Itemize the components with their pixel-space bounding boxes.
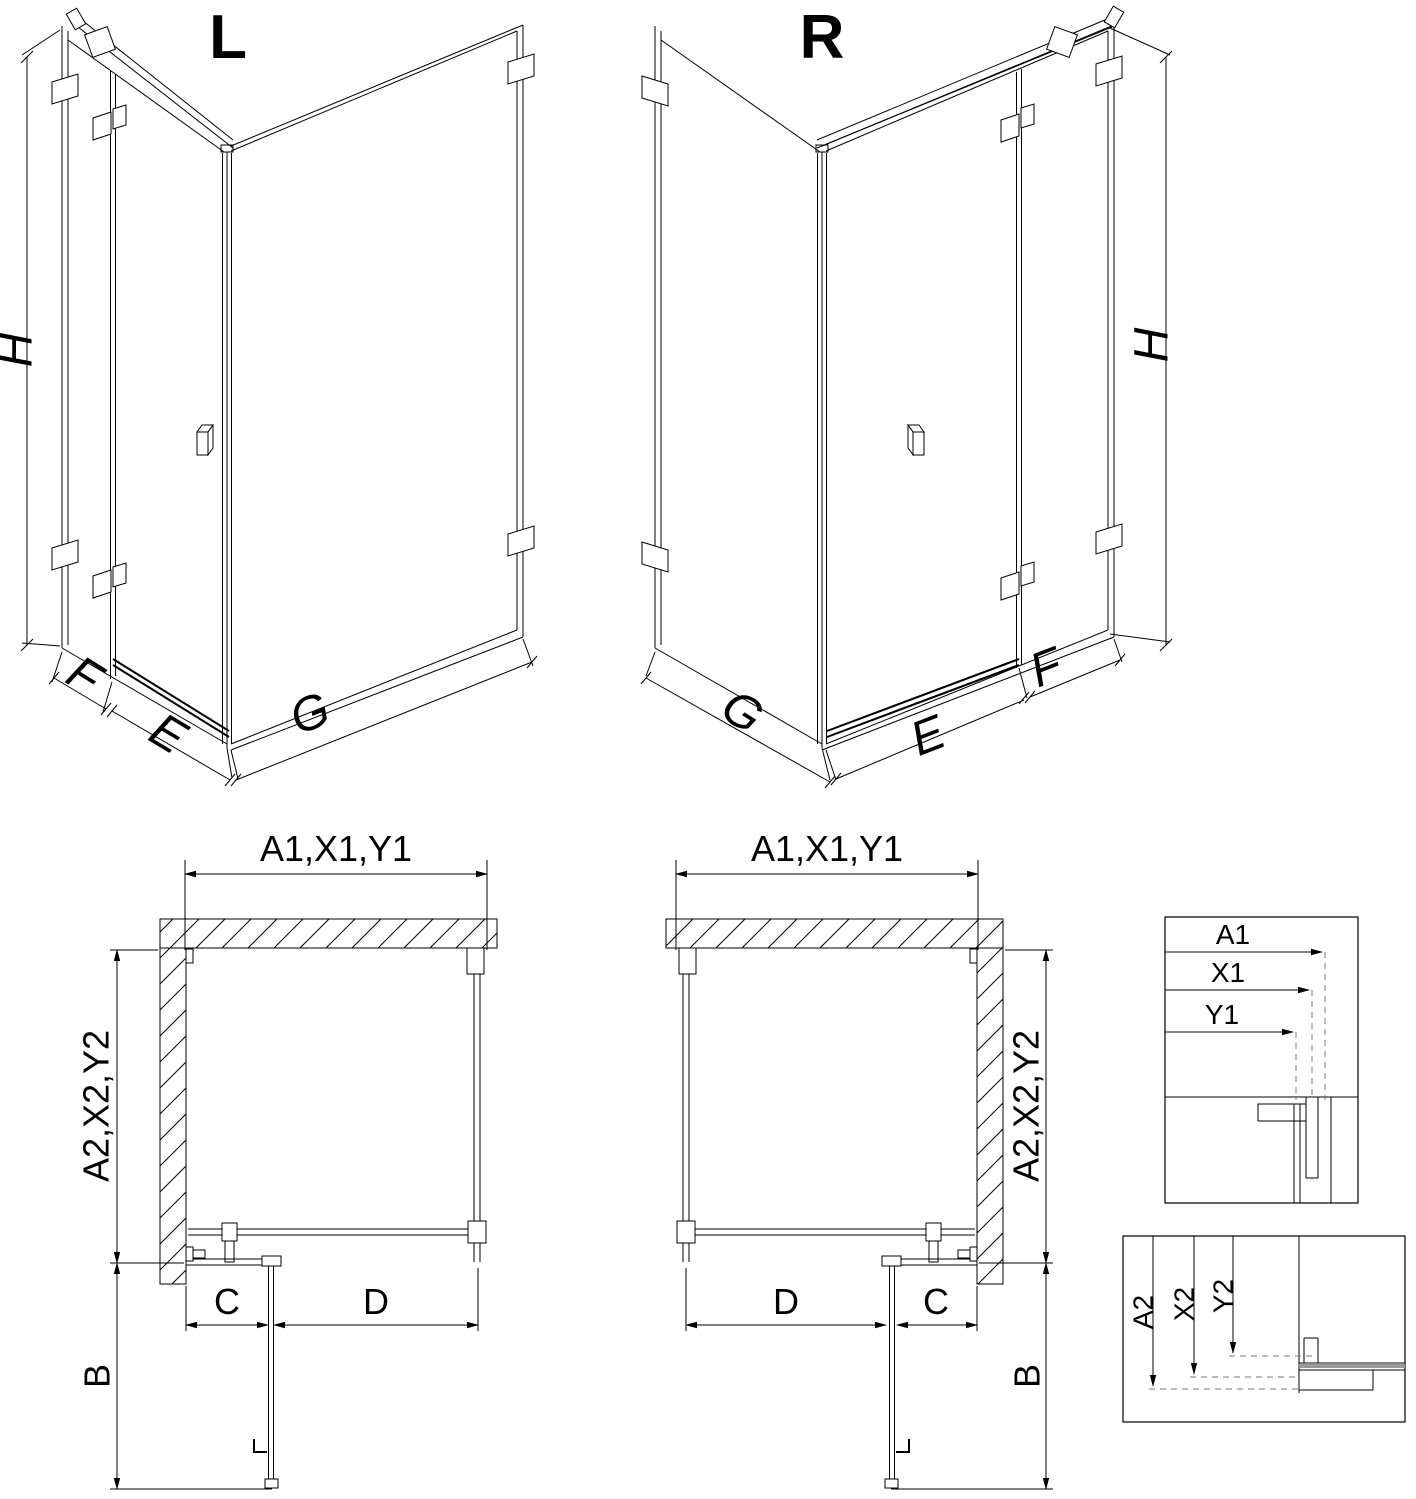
detail-label-y1: Y1: [1205, 999, 1239, 1030]
dim-label-a2x2y2-right: A2,X2,Y2: [1006, 1030, 1047, 1182]
bar-end-cap: [66, 8, 85, 30]
dim-label-c-right: C: [923, 1281, 949, 1322]
dim-label-a1x1y1-left: A1,X1,Y1: [260, 828, 412, 869]
plan-view-left: A1,X1,Y1 A2,X2,Y2 B C D: [76, 828, 498, 1489]
detail-label-y2: Y2: [1208, 1279, 1239, 1313]
door-open-plan-right: [882, 1256, 909, 1488]
dim-height-left: H: [0, 30, 60, 651]
bar-bracket: [1047, 27, 1078, 58]
iso-view-left: H F E G L: [0, 3, 537, 786]
variant-label-left: L: [209, 3, 247, 72]
dim-label-f-left: F: [58, 646, 113, 708]
wall-side-hatch: [160, 948, 186, 1284]
enclosure-plan-right: [677, 948, 977, 1265]
dim-label-h-right: H: [1126, 327, 1179, 362]
plan-view-right: A1,X1,Y1 A2,X2,Y2 B D C: [666, 828, 1053, 1489]
glass-panels-left: [62, 25, 523, 750]
hinges-left: [93, 105, 126, 598]
door-knob-right: [908, 425, 924, 455]
dim-label-d-left: D: [363, 1281, 389, 1322]
dim-label-a2x2y2-left: A2,X2,Y2: [76, 1030, 117, 1182]
door-handle: [254, 1439, 267, 1452]
enclosure-plan-left: [186, 948, 486, 1265]
dim-bottom-left: F E G: [49, 639, 537, 786]
detail-label-x1: X1: [1211, 957, 1245, 988]
variant-label-right: R: [800, 3, 845, 72]
top-support-bar-left: [66, 8, 233, 148]
wall-side-hatch: [977, 948, 1003, 1284]
detail-label-x2: X2: [1169, 1287, 1200, 1321]
dim-bottom-right: G E F: [641, 637, 1125, 788]
dim-label-h-left: H: [0, 332, 43, 367]
dim-label-f-right: F: [1023, 637, 1072, 698]
iso-view-right: H G E F R: [641, 3, 1179, 788]
dim-label-c-left: C: [214, 1281, 240, 1322]
detail-box-width: A1 X1 Y1: [1165, 917, 1358, 1203]
dim-label-e-right: E: [904, 705, 954, 766]
dim-label-b-left: B: [77, 1364, 118, 1388]
door-knob-left: [197, 425, 213, 455]
dim-height-right: H: [1110, 28, 1179, 651]
dim-label-g-left: G: [283, 683, 337, 746]
hinges-right: [1001, 104, 1034, 600]
profile-section-width: [1258, 1097, 1331, 1203]
door-handle: [896, 1439, 909, 1452]
dim-label-g-right: G: [712, 680, 772, 745]
profile-section-depth: [1299, 1338, 1405, 1390]
wall-top-hatch: [666, 919, 1003, 948]
detail-label-a1: A1: [1216, 919, 1250, 950]
wall-top-hatch: [160, 919, 497, 948]
top-support-bar-right: [817, 6, 1124, 148]
drawing-canvas: H F E G L: [0, 0, 1416, 1499]
wall-brackets-left: [52, 54, 534, 570]
dim-label-a1x1y1-right: A1,X1,Y1: [751, 828, 903, 869]
door-open-plan-left: [254, 1256, 281, 1488]
bar-end-cap: [1104, 6, 1123, 28]
detail-box-depth: A2 X2 Y2: [1123, 1236, 1405, 1422]
dim-label-d-right: D: [773, 1281, 799, 1322]
wall-brackets-right: [642, 56, 1122, 572]
technical-drawing-sheet: H F E G L: [0, 0, 1416, 1499]
dim-label-b-right: B: [1007, 1364, 1048, 1388]
detail-label-a2: A2: [1128, 1295, 1159, 1329]
